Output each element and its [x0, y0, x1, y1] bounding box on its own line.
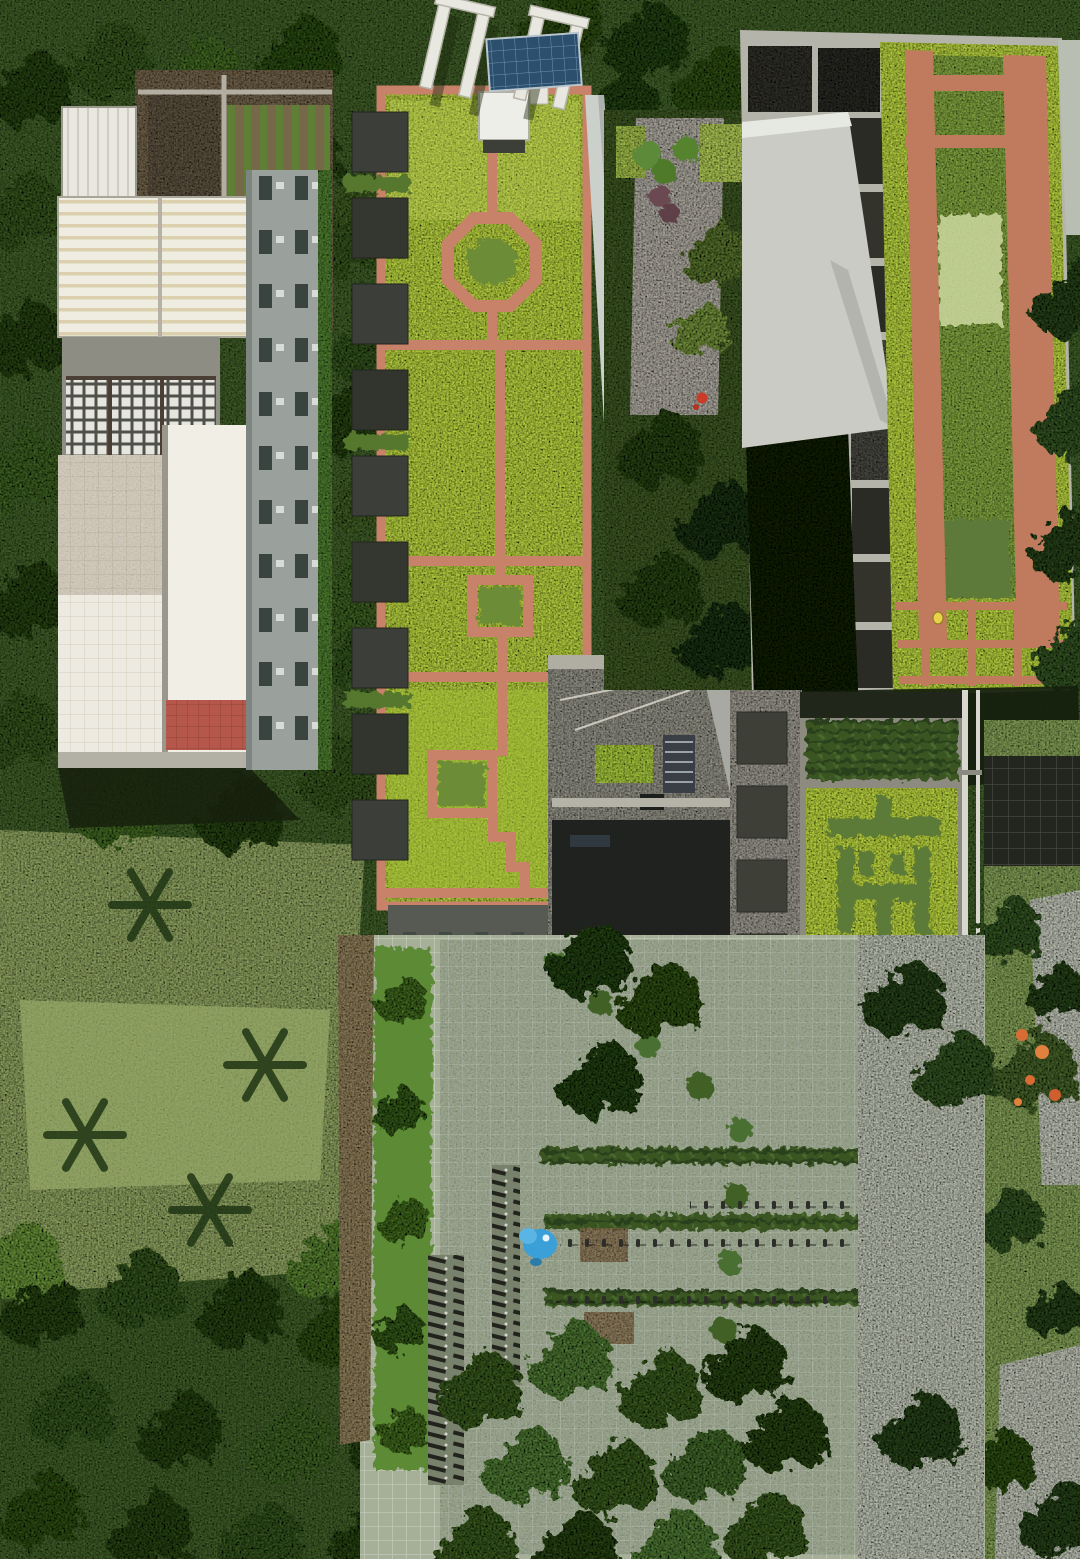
facade-green-strip: [318, 170, 332, 770]
brick-divider: [383, 340, 585, 350]
brick-crossbar: [905, 135, 1045, 148]
roof-cell: [852, 488, 892, 554]
hedge-row: [540, 1148, 860, 1164]
shaded-planting: [746, 428, 858, 698]
balcony-hedge: [344, 434, 410, 450]
dark-grid-mats: [984, 756, 1080, 866]
red-tile-section: [166, 700, 246, 750]
hedge-panel: [806, 720, 958, 780]
plaza: grass-grid paver plaza with hedge rows, …: [338, 921, 998, 1559]
brick-zigzag: [488, 832, 516, 842]
glass-glint: [570, 835, 610, 847]
balcony: [352, 456, 408, 516]
people-row: [560, 1228, 850, 1248]
balcony-hedge: [344, 692, 410, 708]
balcony: [352, 542, 408, 602]
roof-cell: [854, 630, 895, 688]
people-row: [556, 1292, 828, 1314]
dark-planting: [944, 520, 1010, 598]
brick-divider: [383, 556, 585, 566]
topiary-green: [652, 160, 676, 184]
top-shadow-band: [800, 692, 962, 718]
roof-parapet: [58, 752, 248, 768]
middle-courtyard: courtyard path with round topiary, purpl…: [604, 110, 763, 690]
terrace-post: [108, 378, 112, 458]
balcony: [352, 800, 408, 860]
bicycle-row: [428, 1255, 464, 1485]
pad: [737, 712, 787, 764]
motto-panel-nan: 南: [806, 788, 958, 944]
dirt-path: [338, 935, 374, 1445]
hedge-row: [545, 1214, 860, 1230]
topiary-purple: [660, 204, 680, 224]
people-row: [690, 1196, 850, 1216]
balcony: [352, 714, 408, 774]
roof-cell: [853, 562, 894, 622]
bicycle-row: [492, 1165, 520, 1385]
pale-planting: [938, 215, 1002, 325]
striped-shed: [58, 197, 262, 337]
green-patch: [595, 745, 653, 783]
aerial-photo: aerial-drone-photograph: [0, 0, 1080, 1559]
solar-panels: [486, 33, 581, 91]
brick-crossbar: [905, 75, 1045, 91]
hvac-unit: [663, 735, 695, 793]
aerial-photo-stage: aerial-drone-photograph: [0, 0, 1080, 1559]
rooftop-box-shadow: [483, 140, 525, 153]
rail-post: [960, 770, 982, 775]
left-building: white-roofed block with rooftop vegetabl…: [58, 70, 333, 828]
bright-groundcover: [700, 124, 744, 182]
red-flower: [693, 404, 699, 410]
brick-zigzag: [506, 862, 530, 872]
balcony-modules: [344, 112, 410, 860]
grid-bar: [968, 600, 976, 686]
balcony: [352, 112, 408, 172]
red-flower: [697, 393, 708, 404]
roof-weathering: [58, 455, 162, 595]
roof-cell: [748, 46, 812, 112]
pad: [737, 786, 787, 838]
left-building-facade: [246, 170, 332, 770]
balcony: [352, 284, 408, 344]
balcony-hedge: [344, 176, 410, 192]
balcony: [352, 628, 408, 688]
topiary-purple: [649, 185, 671, 207]
balcony: [352, 198, 408, 258]
brick-path: [497, 682, 507, 756]
balcony: [352, 370, 408, 430]
small-shed-roof: [62, 107, 136, 199]
striped-green-roof: [880, 42, 1074, 694]
facade-edge: [246, 170, 252, 770]
grid-bar: [895, 602, 1067, 610]
topiary-green: [673, 136, 699, 162]
octagon-planting: [468, 240, 516, 284]
pad: [737, 860, 787, 912]
roof-cell: [818, 48, 880, 112]
grid-bar: [1014, 600, 1022, 686]
person-yellow-hat: [933, 612, 943, 624]
square-planting: [439, 762, 485, 806]
brick-path: [495, 350, 505, 560]
upper-right-building: green roof with wide brick strips, mixed…: [740, 30, 1080, 788]
shed-seam: [158, 197, 162, 337]
grid-bar: [922, 600, 930, 686]
square-planting: [479, 587, 521, 625]
